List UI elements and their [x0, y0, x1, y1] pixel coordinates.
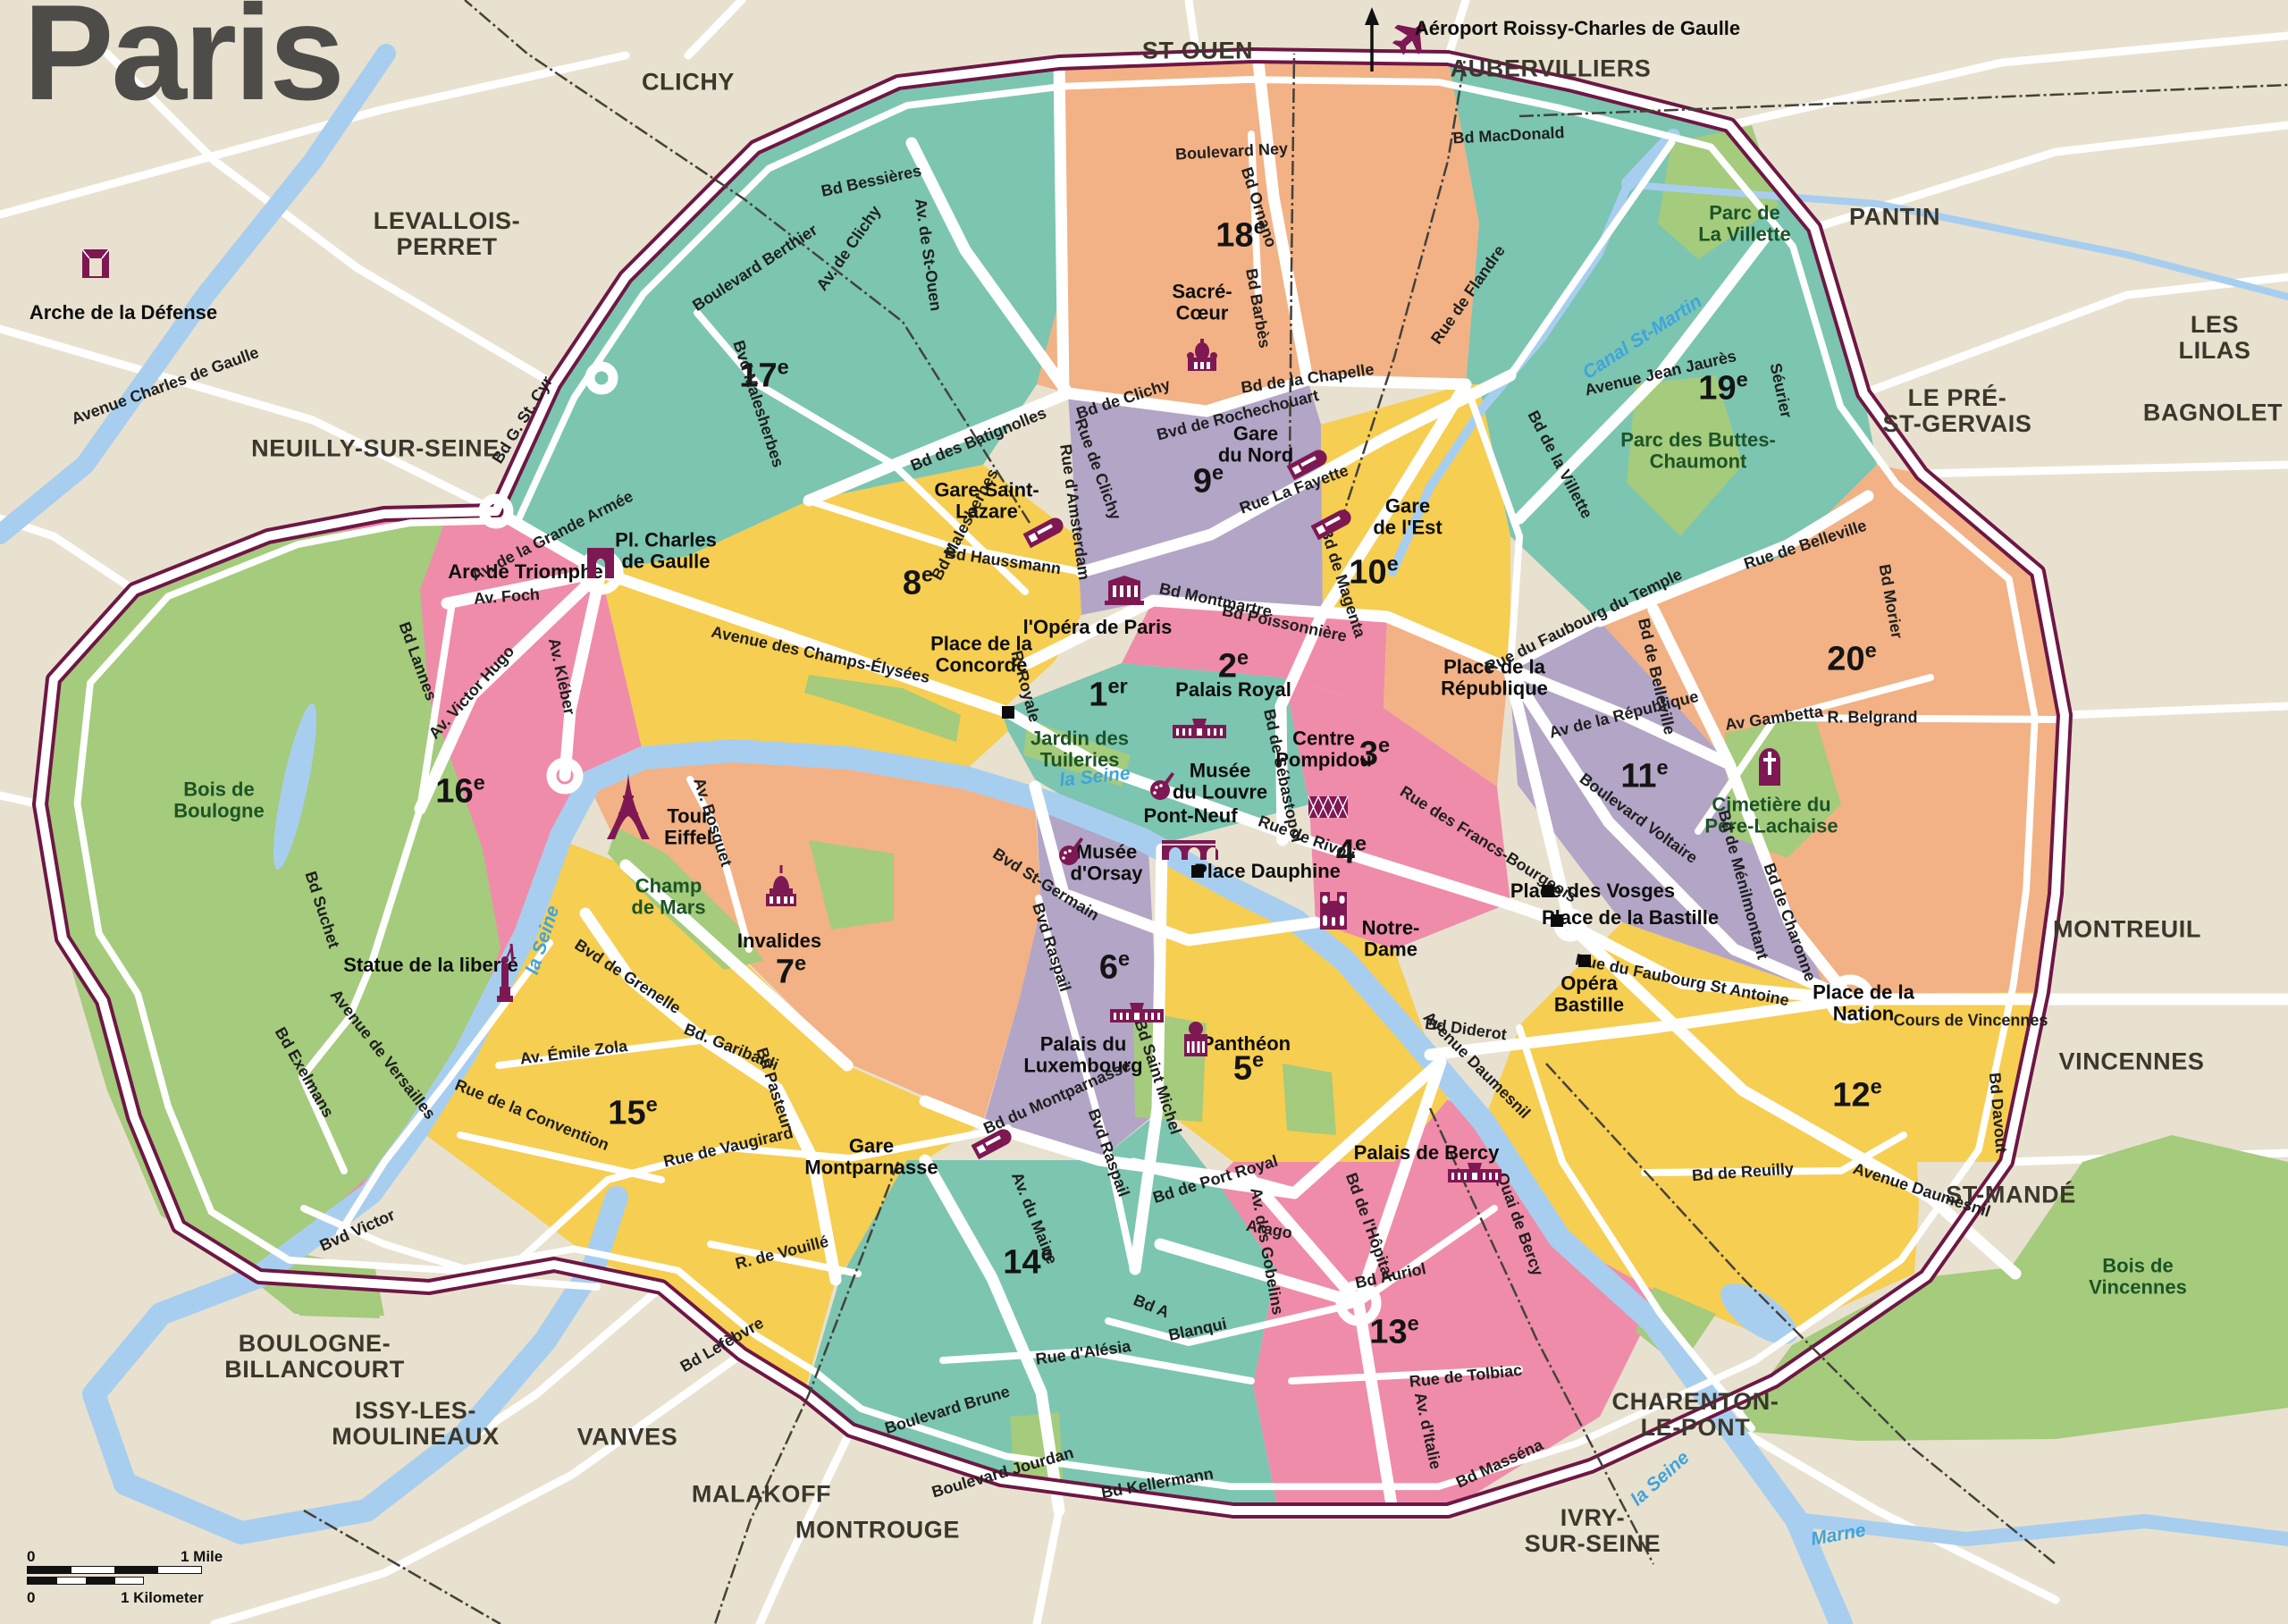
- map-title: Paris: [23, 0, 342, 131]
- scale-mile-label: 1 Mile: [181, 1548, 223, 1566]
- scale-zero-km: 0: [27, 1589, 35, 1607]
- paris-map: Paris CLICHYST-OUENAUBERVILLIERSPANTINLE…: [0, 0, 2288, 1624]
- scale-zero-mile: 0: [27, 1548, 35, 1566]
- scale-bar-km: [27, 1577, 144, 1585]
- map-canvas: [0, 0, 2288, 1624]
- scale-km-label: 1 Kilometer: [121, 1589, 204, 1607]
- airport-label: Aéroport Roissy-Charles de Gaulle: [1415, 18, 1740, 39]
- scale-bar: 0 1 Mile 0 1 Kilometer: [27, 1548, 232, 1607]
- luxembourg-area: [1133, 1010, 1207, 1122]
- scale-bar-miles: [27, 1566, 202, 1574]
